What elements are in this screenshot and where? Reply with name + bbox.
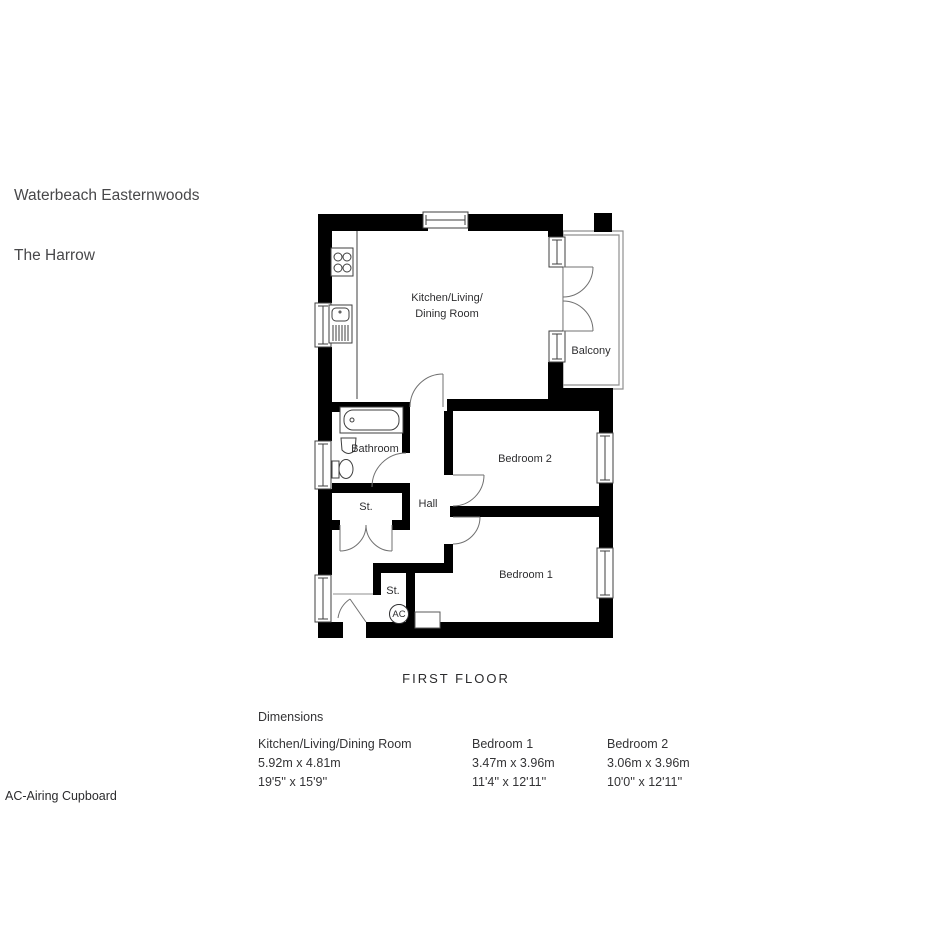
wall [447,399,599,411]
hob-icon [331,248,353,276]
wall [332,483,410,493]
window-icon [549,237,565,267]
door-entrance [338,599,366,622]
wall [599,389,613,433]
window-icon [315,575,331,622]
dim-imperial: 11'4'' x 12'11'' [472,773,555,792]
door-kitchen [410,374,443,407]
dim-imperial: 19'5'' x 15'9'' [258,773,412,792]
dim-room-name: Kitchen/Living/Dining Room [258,735,412,754]
room-label-store2: St. [386,583,399,599]
door-bedroom2 [453,475,484,506]
door-bathroom [372,453,406,487]
room-label-kitchen: Kitchen/Living/ Dining Room [411,290,483,322]
wall [548,362,563,389]
wall [318,622,343,638]
window-icon [315,441,331,489]
room-label-balcony: Balcony [571,343,610,359]
door-store1-double [340,525,392,551]
dim-room-name: Bedroom 2 [607,735,690,754]
room-label-store1: St. [359,499,372,515]
window-icon [549,331,565,362]
door-bedroom1 [453,517,480,544]
room-label-bedroom2: Bedroom 2 [498,451,552,467]
window-icon [597,433,613,483]
wall [366,622,613,638]
legend-airing-cupboard: AC-Airing Cupboard [5,789,117,803]
wall-niche [415,612,440,628]
window-icon [423,212,468,228]
wall [318,214,428,231]
wall [444,411,453,475]
dim-metric: 3.06m x 3.96m [607,754,690,773]
wall [318,347,332,441]
room-label-hall: Hall [419,496,438,512]
dim-metric: 3.47m x 3.96m [472,754,555,773]
airing-cupboard-badge: AC [389,604,409,624]
dimensions-kitchen: Kitchen/Living/Dining Room 5.92m x 4.81m… [258,735,412,792]
dimensions-heading: Dimensions [258,710,323,724]
dimensions-bedroom1: Bedroom 1 3.47m x 3.96m 11'4'' x 12'11'' [472,735,555,792]
toilet-icon [332,460,353,479]
wall [373,563,381,595]
room-label-bathroom: Bathroom [351,441,399,457]
wall [450,506,613,517]
dimensions-bedroom2: Bedroom 2 3.06m x 3.96m 10'0'' x 12'11'' [607,735,690,792]
dim-imperial: 10'0'' x 12'11'' [607,773,690,792]
wall [318,214,332,303]
wall [318,489,332,575]
dim-room-name: Bedroom 1 [472,735,555,754]
floor-caption: FIRST FLOOR [402,671,510,686]
room-label-bedroom1: Bedroom 1 [499,567,553,583]
dim-metric: 5.92m x 4.81m [258,754,412,773]
wall-pillar [594,213,612,232]
wall [548,214,563,237]
window-icon [597,548,613,598]
sink-icon [329,305,352,343]
wall [392,520,410,530]
bathtub-icon [340,407,403,433]
wall [332,520,340,530]
floorplan-page: { "header": { "project": "Waterbeach Eas… [0,0,945,945]
floorplan-drawing [0,0,945,945]
balcony-railing-icon [563,231,623,389]
